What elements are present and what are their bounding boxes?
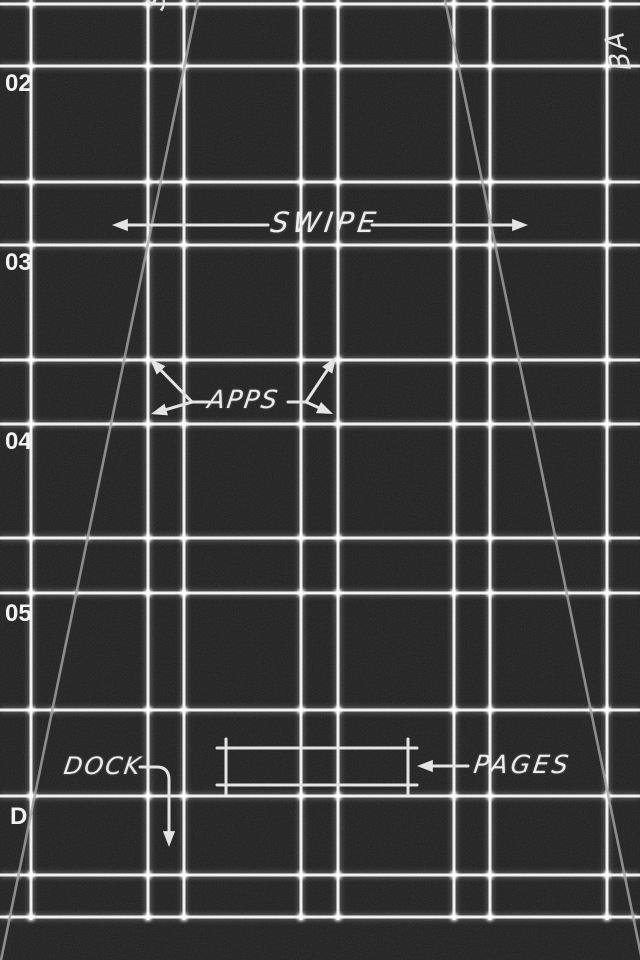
swipe-label: SWIPE (269, 206, 382, 239)
blueprint-wallpaper: 02 03 04 05 D SWIPE APPS DOCK PAGES S BA (0, 0, 640, 960)
apps-label: APPS (206, 385, 281, 414)
row-label-04: 04 (5, 428, 32, 456)
pages-label: PAGES (472, 750, 573, 779)
row-label-dock: D (10, 803, 27, 831)
row-label-02: 02 (5, 70, 32, 98)
row-label-03: 03 (5, 249, 32, 277)
blueprint-grid-graphic (0, 0, 640, 960)
row-label-05: 05 (5, 600, 32, 628)
dock-label: DOCK (62, 752, 144, 780)
